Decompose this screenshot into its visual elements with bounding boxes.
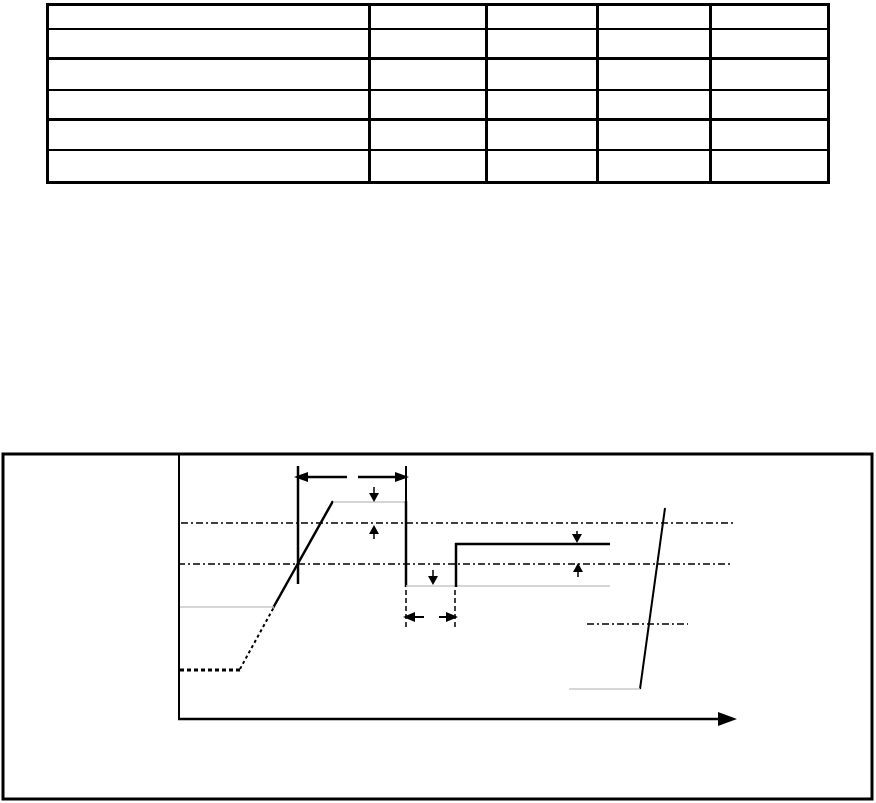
ramp-dotted — [240, 607, 274, 669]
overshoot-arrowhead — [369, 493, 379, 502]
x-axis-arrowhead — [718, 712, 737, 726]
pulse-dim-arrowhead-left — [403, 612, 415, 622]
vih-arrowhead — [369, 525, 379, 534]
timing-diagram-figure — [0, 0, 876, 803]
plateau2-arrowhead — [572, 534, 582, 543]
right-edge-diagonal — [640, 508, 665, 689]
document-page: { "page": { "background": "#ffffff", "in… — [0, 0, 876, 803]
pulse-dim-arrowhead-right — [446, 612, 458, 622]
top-dim-arrowhead-left — [294, 472, 308, 482]
figure-border — [3, 454, 872, 799]
ramp-solid — [273, 501, 333, 608]
undershoot-arrowhead — [428, 576, 438, 585]
